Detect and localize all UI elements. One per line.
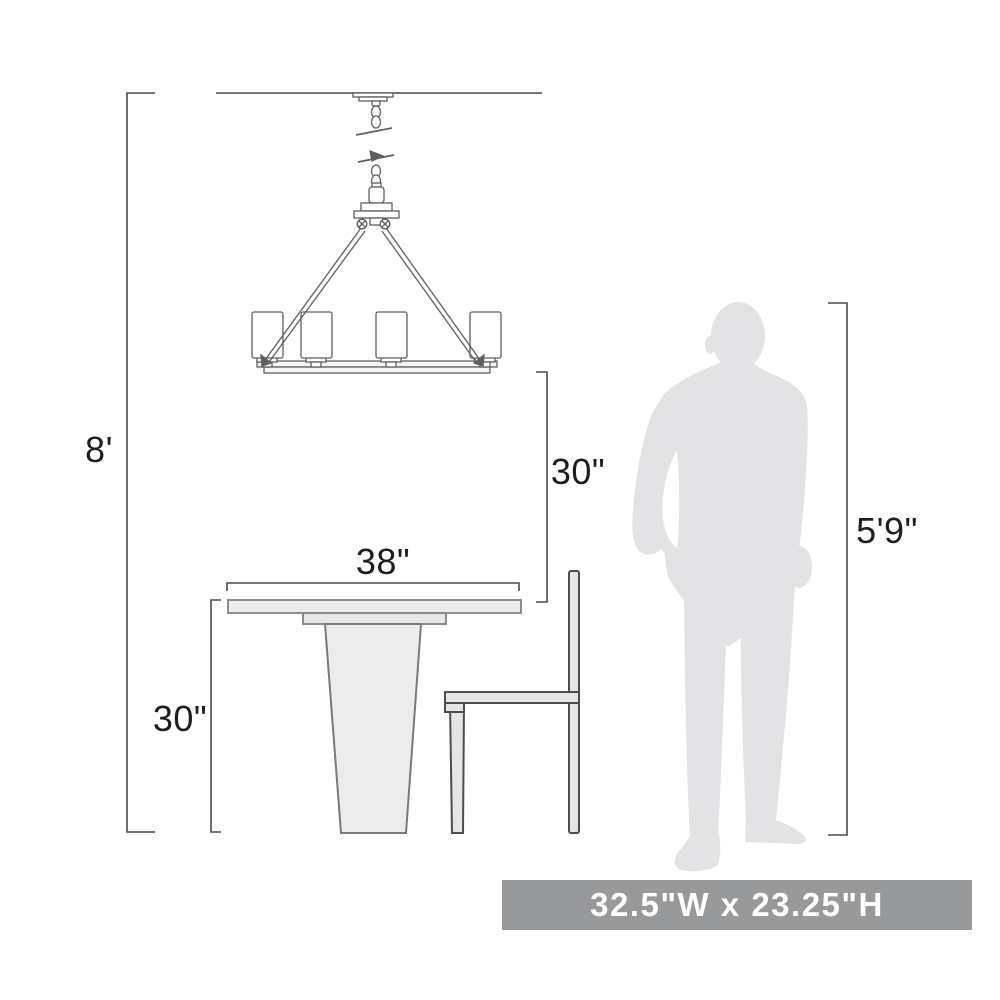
chandelier-shade: [376, 312, 407, 358]
person-silhouette: [632, 302, 812, 871]
chandelier-ring: [257, 361, 497, 373]
chandelier-shade: [301, 312, 332, 358]
diagram-drawing: [0, 0, 1000, 1000]
dimension-line-30in-table-height: [211, 600, 221, 832]
label-table-width: 38": [356, 541, 410, 583]
label-person-height: 5'9": [856, 510, 918, 552]
dimension-line-5ft9: [828, 303, 847, 835]
chair-leg-joint: [445, 703, 464, 712]
chandelier-support-arms: [261, 228, 484, 366]
dimension-line-8ft: [127, 93, 155, 832]
chandelier-shade: [252, 312, 283, 358]
size-banner-text: 32.5"W x 23.25"H: [590, 886, 884, 924]
table-apron: [303, 613, 446, 624]
table-pedestal: [325, 624, 421, 833]
chandelier: [252, 93, 501, 373]
label-table-height: 30": [153, 698, 207, 740]
dimension-line-30in-clearance: [536, 372, 547, 602]
chandelier-chain: [356, 106, 394, 187]
chair-front-leg: [450, 703, 464, 833]
size-banner: 32.5"W x 23.25"H: [502, 880, 972, 930]
label-ceiling-height: 8': [85, 429, 113, 471]
chair-seat: [445, 692, 579, 703]
chandelier-canopy: [353, 93, 393, 106]
dining-table: [228, 600, 521, 833]
chandelier-shade: [470, 312, 501, 358]
dimension-line-38in-width: [227, 583, 519, 591]
label-fixture-to-table: 30": [551, 451, 605, 493]
table-top: [228, 600, 521, 613]
dimension-diagram: 8' 30" 38" 30" 5'9" 32.5"W x 23.25"H: [0, 0, 1000, 1000]
